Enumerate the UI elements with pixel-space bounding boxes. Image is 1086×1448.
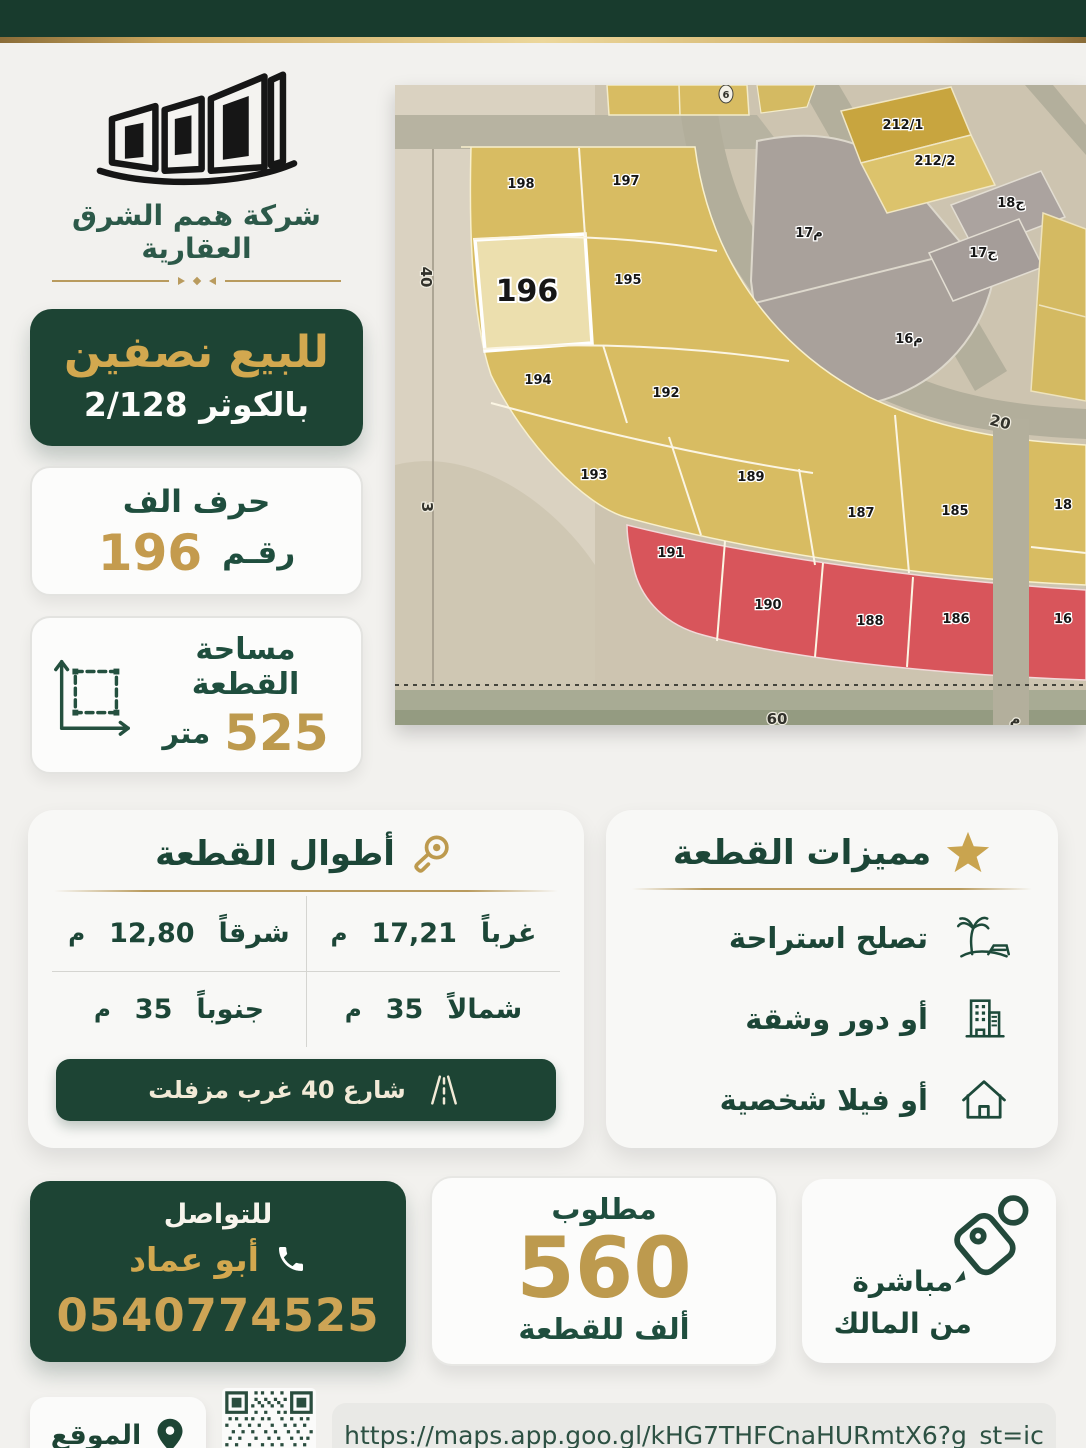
map-url[interactable]: https://maps.app.goo.gl/kHG7THFCnaHURmtX… [344, 1421, 1044, 1448]
gold-rule [54, 890, 558, 892]
length-east: شرقاً 12,80 م [52, 896, 306, 972]
street-label-3: 3 [418, 502, 436, 512]
info-column: شركة همم الشرق العقارية للبيع نصفين بالك… [28, 61, 365, 774]
flyer-page: شركة همم الشرق العقارية للبيع نصفين بالك… [0, 0, 1086, 1448]
plot-number-label: رقـم [222, 535, 295, 571]
street-note-text: شارع 40 غرب مزفلت [148, 1076, 405, 1104]
map-link-pill[interactable]: https://maps.app.goo.gl/kHG7THFCnaHURmtX… [332, 1403, 1056, 1448]
star-icon [945, 830, 991, 876]
owner-note-box: مباشرة من المالك [802, 1179, 1056, 1363]
plot-letter: حرف الف [42, 484, 351, 520]
location-row: الموقع https://maps.app.goo.gl/kHG7THFCn… [30, 1388, 1056, 1448]
plot-label: 189 [737, 470, 764, 485]
area-unit: متر [162, 716, 210, 750]
plot-label: 195 [614, 273, 641, 288]
measuring-tape-icon [409, 830, 457, 878]
phone-icon [275, 1243, 307, 1275]
plot-label: 193 [580, 468, 607, 483]
gold-rule [632, 888, 1032, 890]
feature-private-villa: أو فيلا شخصية [630, 1072, 1012, 1128]
location-label: الموقع [51, 1420, 142, 1448]
plot-label: 16م [895, 332, 923, 347]
features-title: مميزات القطعة [673, 833, 931, 873]
plot-label-partial: 16 [1054, 612, 1072, 627]
sale-badge-title: للبيع نصفين [40, 329, 353, 377]
sale-badge: للبيع نصفين بالكوثر 2/128 [30, 309, 363, 446]
header-row: شركة همم الشرق العقارية للبيع نصفين بالك… [0, 61, 1086, 774]
plot-label: 197 [612, 174, 639, 189]
contact-title: للتواصل [40, 1199, 396, 1230]
plot-label: 187 [847, 506, 874, 521]
area-value: 525 [224, 708, 328, 758]
plot-label: 18ج [997, 196, 1025, 211]
road-icon [424, 1070, 464, 1110]
price-unit: ألف للقطعة [440, 1312, 768, 1346]
palm-rest-icon [956, 910, 1012, 966]
ornament-divider [52, 277, 341, 285]
house-icon [956, 1072, 1012, 1128]
street-label-40: 40 [417, 267, 435, 288]
length-north: شمالاً 35 م [306, 972, 560, 1047]
lengths-title: أطوال القطعة [155, 834, 395, 874]
plot-label-highlight: 196 [496, 274, 559, 309]
lengths-grid: غرباً 17,21 م شرقاً 12,80 م شمالاً 35 م … [52, 896, 560, 1047]
area-label: مساحة القطعة [142, 632, 349, 702]
contact-box: للتواصل أبو عماد 0540774525 [30, 1181, 406, 1362]
plot-label: 190 [754, 598, 781, 613]
plot-number-value: 196 [98, 528, 202, 578]
street-label-m: م [1010, 710, 1021, 725]
details-row: أطوال القطعة غرباً 17,21 م شرقاً 12,80 م… [28, 810, 1058, 1148]
sale-badge-subtitle: بالكوثر 2/128 [40, 385, 353, 424]
location-pill: الموقع [30, 1397, 206, 1448]
buildings-logo-icon [81, 71, 313, 193]
top-green-bar [0, 0, 1086, 37]
price-value: 560 [440, 1226, 768, 1312]
top-gold-line [0, 37, 1086, 43]
dimensions-icon [44, 650, 138, 740]
location-pin-icon [155, 1417, 185, 1448]
street-label-6: 6 [723, 90, 730, 101]
plot-label-partial: 18 [1054, 498, 1072, 513]
feature-rest-house: تصلح استراحة [630, 910, 1012, 966]
plot-label: 192 [652, 386, 679, 401]
features-card: مميزات القطعة [606, 810, 1058, 1148]
plot-label: 212/1 [883, 118, 924, 133]
plot-number-box: حرف الف رقـم 196 [30, 466, 363, 596]
plot-area-box: مساحة القطعة 525 متر [30, 616, 363, 774]
company-name: شركة همم الشرق العقارية [28, 199, 365, 265]
owner-note-text: مباشرة من المالك [824, 1261, 981, 1345]
price-box: مطلوب 560 ألف للقطعة [430, 1176, 778, 1366]
length-south: جنوباً 35 م [52, 972, 306, 1047]
plot-label: 194 [524, 373, 551, 388]
plot-label: 198 [507, 177, 534, 192]
length-west: غرباً 17,21 م [306, 896, 560, 972]
plot-label: 17ج [969, 246, 997, 261]
contact-name: أبو عماد [129, 1240, 259, 1279]
plot-label: 212/2 [915, 154, 956, 169]
feature-floor-apartment: أو دور وشقة [630, 991, 1012, 1047]
company-logo [28, 71, 365, 197]
street-note-bar: شارع 40 غرب مزفلت [56, 1059, 556, 1121]
bottom-row: للتواصل أبو عماد 0540774525 مطلوب 560 أل… [30, 1176, 1056, 1366]
plot-label: 17م [795, 226, 823, 241]
lengths-card: أطوال القطعة غرباً 17,21 م شرقاً 12,80 م… [28, 810, 584, 1148]
plot-label: 188 [856, 614, 883, 629]
qr-code-image[interactable] [222, 1388, 316, 1448]
plots-map-image: 198 197 196 195 194 192 193 189 187 185 … [395, 85, 1086, 725]
plot-label: 186 [942, 612, 969, 627]
plot-label: 185 [941, 504, 968, 519]
phone-number[interactable]: 0540774525 [40, 1289, 396, 1342]
street-label-60: 60 [767, 710, 788, 725]
features-list: تصلح استراحة [630, 910, 1034, 1128]
plots-map: 198 197 196 195 194 192 193 189 187 185 … [395, 85, 1086, 725]
building-icon [956, 991, 1012, 1047]
plot-label: 191 [657, 546, 684, 561]
